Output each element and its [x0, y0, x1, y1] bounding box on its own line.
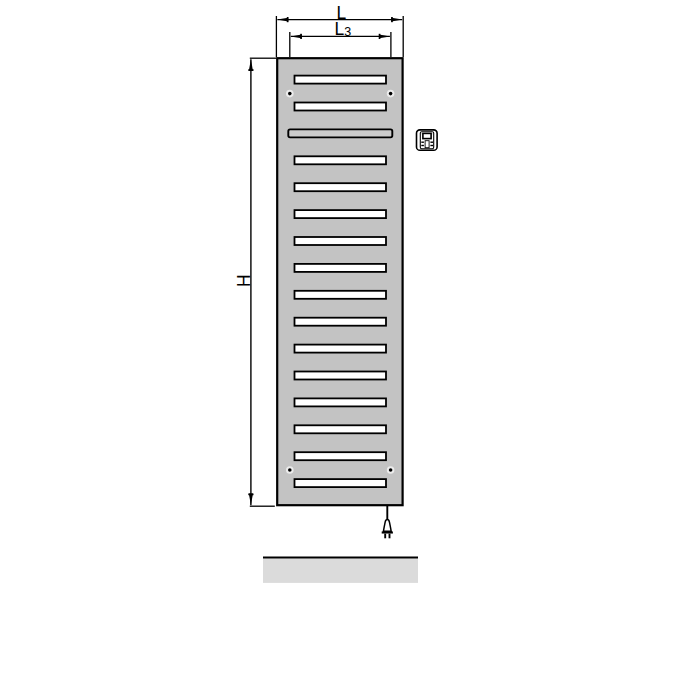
svg-text:H: H — [234, 274, 254, 287]
svg-text:3: 3 — [344, 25, 351, 39]
svg-text:L: L — [335, 19, 345, 39]
